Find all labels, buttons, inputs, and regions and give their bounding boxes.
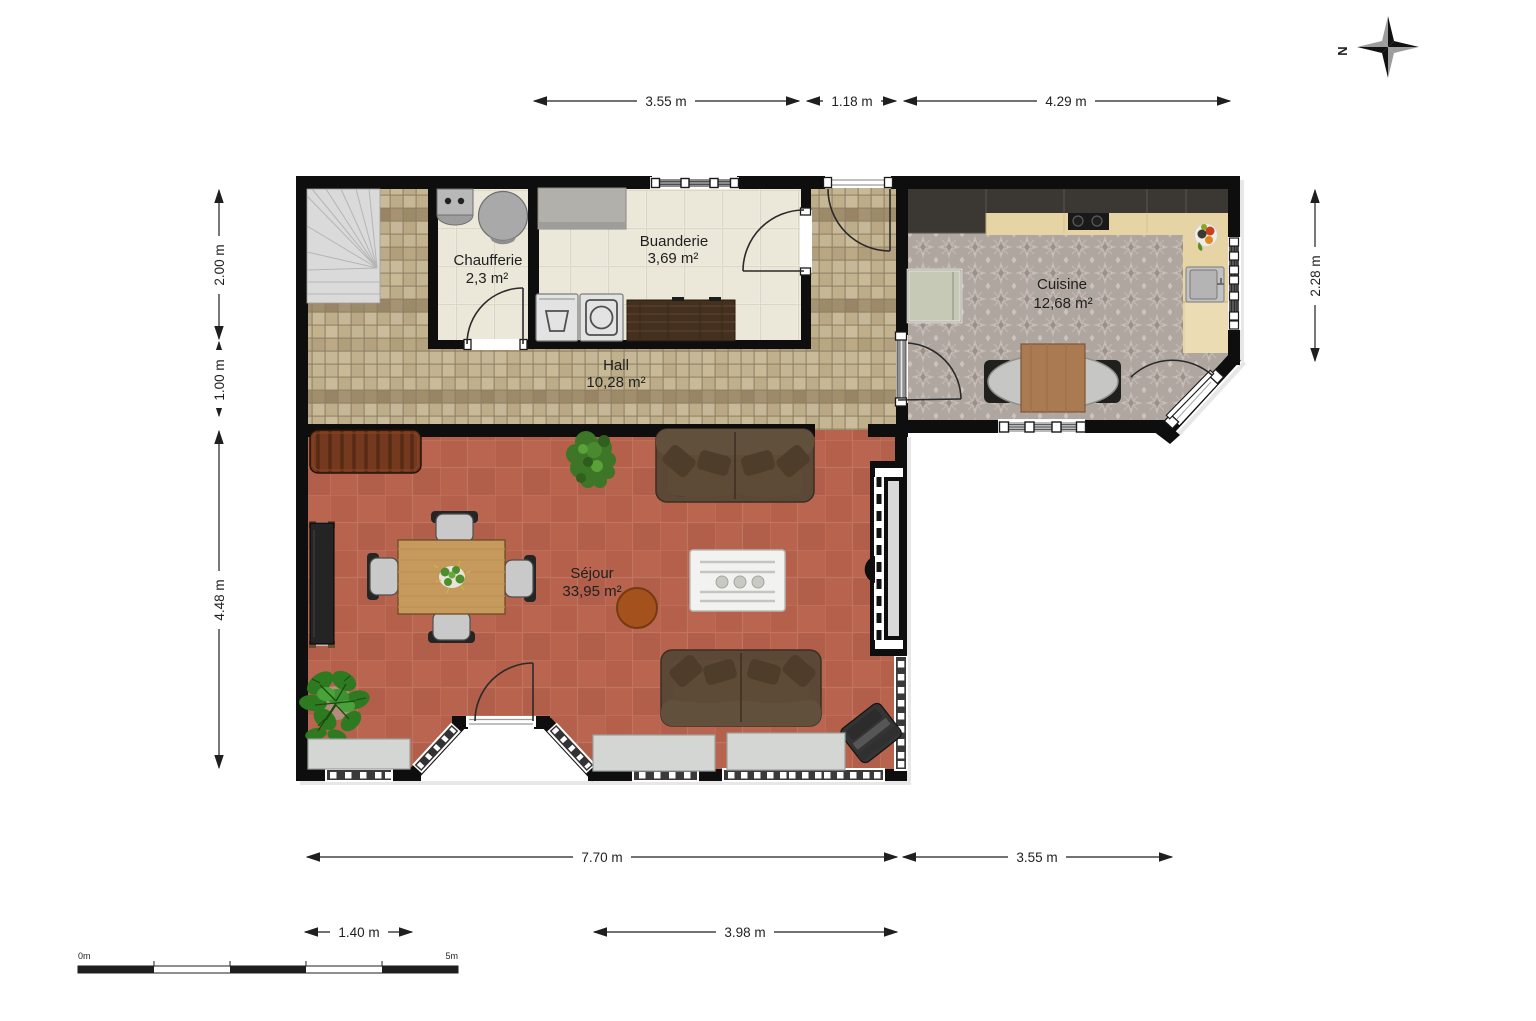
svg-text:10,28 m²: 10,28 m² (586, 374, 645, 391)
svg-text:5m: 5m (445, 951, 458, 961)
svg-text:33,95 m²: 33,95 m² (562, 583, 621, 600)
svg-text:N: N (1335, 46, 1350, 55)
svg-text:4.29 m: 4.29 m (1045, 94, 1086, 109)
svg-text:1.00 m: 1.00 m (212, 359, 227, 400)
svg-text:1.18 m: 1.18 m (831, 94, 872, 109)
svg-text:Séjour: Séjour (570, 565, 613, 582)
svg-text:3.55 m: 3.55 m (645, 94, 686, 109)
svg-text:3.55 m: 3.55 m (1016, 850, 1057, 865)
svg-text:Chaufferie: Chaufferie (454, 252, 523, 269)
svg-text:2.00 m: 2.00 m (212, 244, 227, 285)
svg-text:3.98 m: 3.98 m (724, 925, 765, 940)
svg-text:1.40 m: 1.40 m (338, 925, 379, 940)
svg-text:Cuisine: Cuisine (1037, 276, 1087, 293)
svg-text:Buanderie: Buanderie (640, 233, 708, 250)
svg-text:Hall: Hall (603, 357, 629, 374)
svg-text:2,3 m²: 2,3 m² (466, 270, 509, 287)
svg-text:2.28 m: 2.28 m (1308, 255, 1323, 296)
svg-text:7.70 m: 7.70 m (581, 850, 622, 865)
svg-text:12,68 m²: 12,68 m² (1033, 295, 1092, 312)
svg-text:0m: 0m (78, 951, 91, 961)
svg-text:3,69 m²: 3,69 m² (648, 250, 699, 267)
svg-text:4.48 m: 4.48 m (212, 579, 227, 620)
